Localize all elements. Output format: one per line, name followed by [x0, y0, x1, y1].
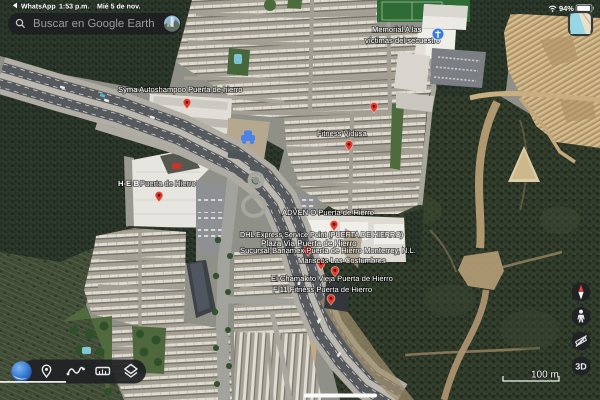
svg-text:Sucursal-Banamex Puerta de Hie: Sucursal-Banamex Puerta de Hierro Monter…: [240, 246, 416, 255]
svg-text:3D: 3D: [575, 362, 587, 372]
svg-text:ADVEN O Puerta de Hierro: ADVEN O Puerta de Hierro: [282, 208, 374, 217]
svg-text:Puerta de Hierro: Puerta de Hierro: [140, 179, 196, 188]
svg-text:Buscar en Google Earth: Buscar en Google Earth: [33, 18, 155, 30]
svg-text:F 11 Fitness Puerta de Hierro: F 11 Fitness Puerta de Hierro: [273, 285, 372, 294]
svg-text:1:53 p.m.: 1:53 p.m.: [59, 3, 89, 10]
svg-text:Memorial A las: Memorial A las: [372, 25, 422, 34]
svg-text:Syma Autoshampoo Puerta de hie: Syma Autoshampoo Puerta de hierro: [118, 85, 243, 94]
svg-text:Mariscos Las Costumbres: Mariscos Las Costumbres: [298, 256, 386, 265]
svg-text:Mié 5 de nov.: Mié 5 de nov.: [97, 2, 140, 10]
svg-text:100 m: 100 m: [531, 370, 559, 381]
svg-text:H-E-B: H-E-B: [118, 179, 140, 188]
svg-text:víctimas del secuestro: víctimas del secuestro: [365, 36, 440, 45]
svg-text:WhatsApp: WhatsApp: [21, 2, 56, 10]
svg-text:Fitness Vidusa: Fitness Vidusa: [317, 129, 367, 138]
svg-text:El Chamakito Vieja Puerta de H: El Chamakito Vieja Puerta de Hierro: [271, 274, 393, 283]
svg-text:DHL Express Service Point (PUE: DHL Express Service Point (PUERTA DE HIE…: [240, 230, 403, 239]
